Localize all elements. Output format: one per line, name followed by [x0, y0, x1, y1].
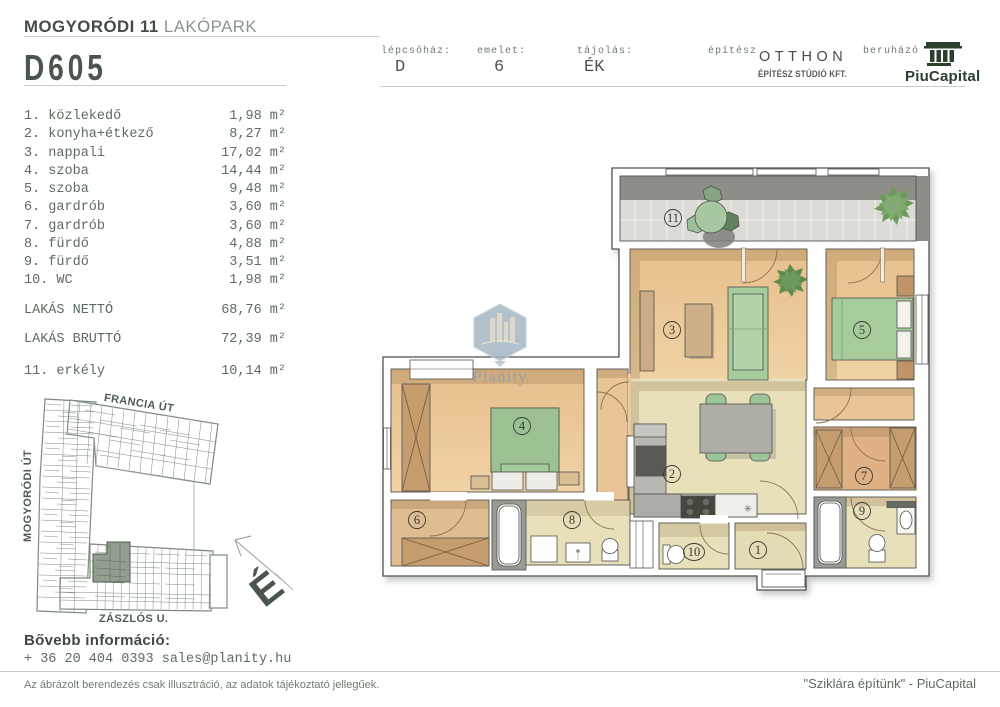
- svg-text:11: 11: [667, 211, 679, 225]
- svg-text:8: 8: [569, 513, 575, 527]
- svg-text:Planity: Planity: [472, 367, 527, 386]
- svg-text:2: 2: [669, 467, 675, 481]
- svg-text:É: É: [241, 561, 292, 615]
- svg-text:9: 9: [859, 504, 865, 518]
- svg-text:4: 4: [519, 419, 526, 433]
- svg-text:5: 5: [859, 323, 865, 337]
- svg-text:10: 10: [688, 545, 701, 559]
- svg-text:1: 1: [755, 543, 761, 557]
- svg-text:6: 6: [414, 513, 420, 527]
- svg-text:3: 3: [669, 323, 675, 337]
- svg-text:✳: ✳: [744, 504, 752, 515]
- svg-text:7: 7: [861, 469, 867, 483]
